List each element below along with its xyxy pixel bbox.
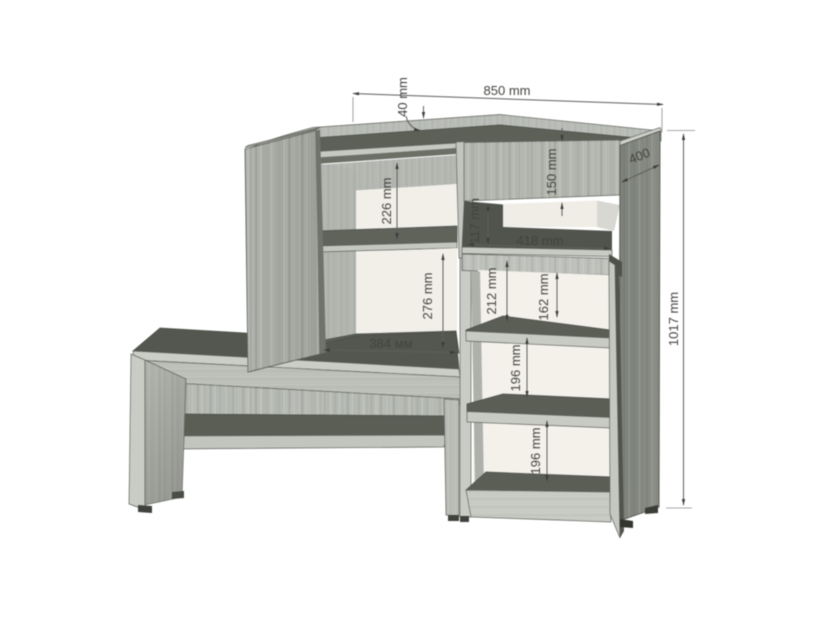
svg-text:162 mm: 162 mm (536, 274, 551, 321)
svg-text:150 mm: 150 mm (544, 149, 559, 196)
svg-text:212 mm: 212 mm (484, 268, 499, 315)
svg-text:276 mm: 276 mm (420, 273, 435, 320)
svg-text:117 mm: 117 mm (467, 198, 482, 244)
svg-text:196 mm: 196 mm (508, 345, 523, 392)
svg-text:850 mm: 850 mm (484, 83, 531, 98)
svg-text:384 мм: 384 мм (369, 336, 412, 351)
svg-text:1017 mm: 1017 mm (666, 292, 681, 346)
svg-text:40 mm: 40 mm (395, 77, 410, 117)
svg-text:418 mm: 418 mm (517, 233, 564, 248)
svg-text:196 mm: 196 mm (528, 428, 543, 475)
svg-text:226 mm: 226 mm (379, 178, 394, 225)
